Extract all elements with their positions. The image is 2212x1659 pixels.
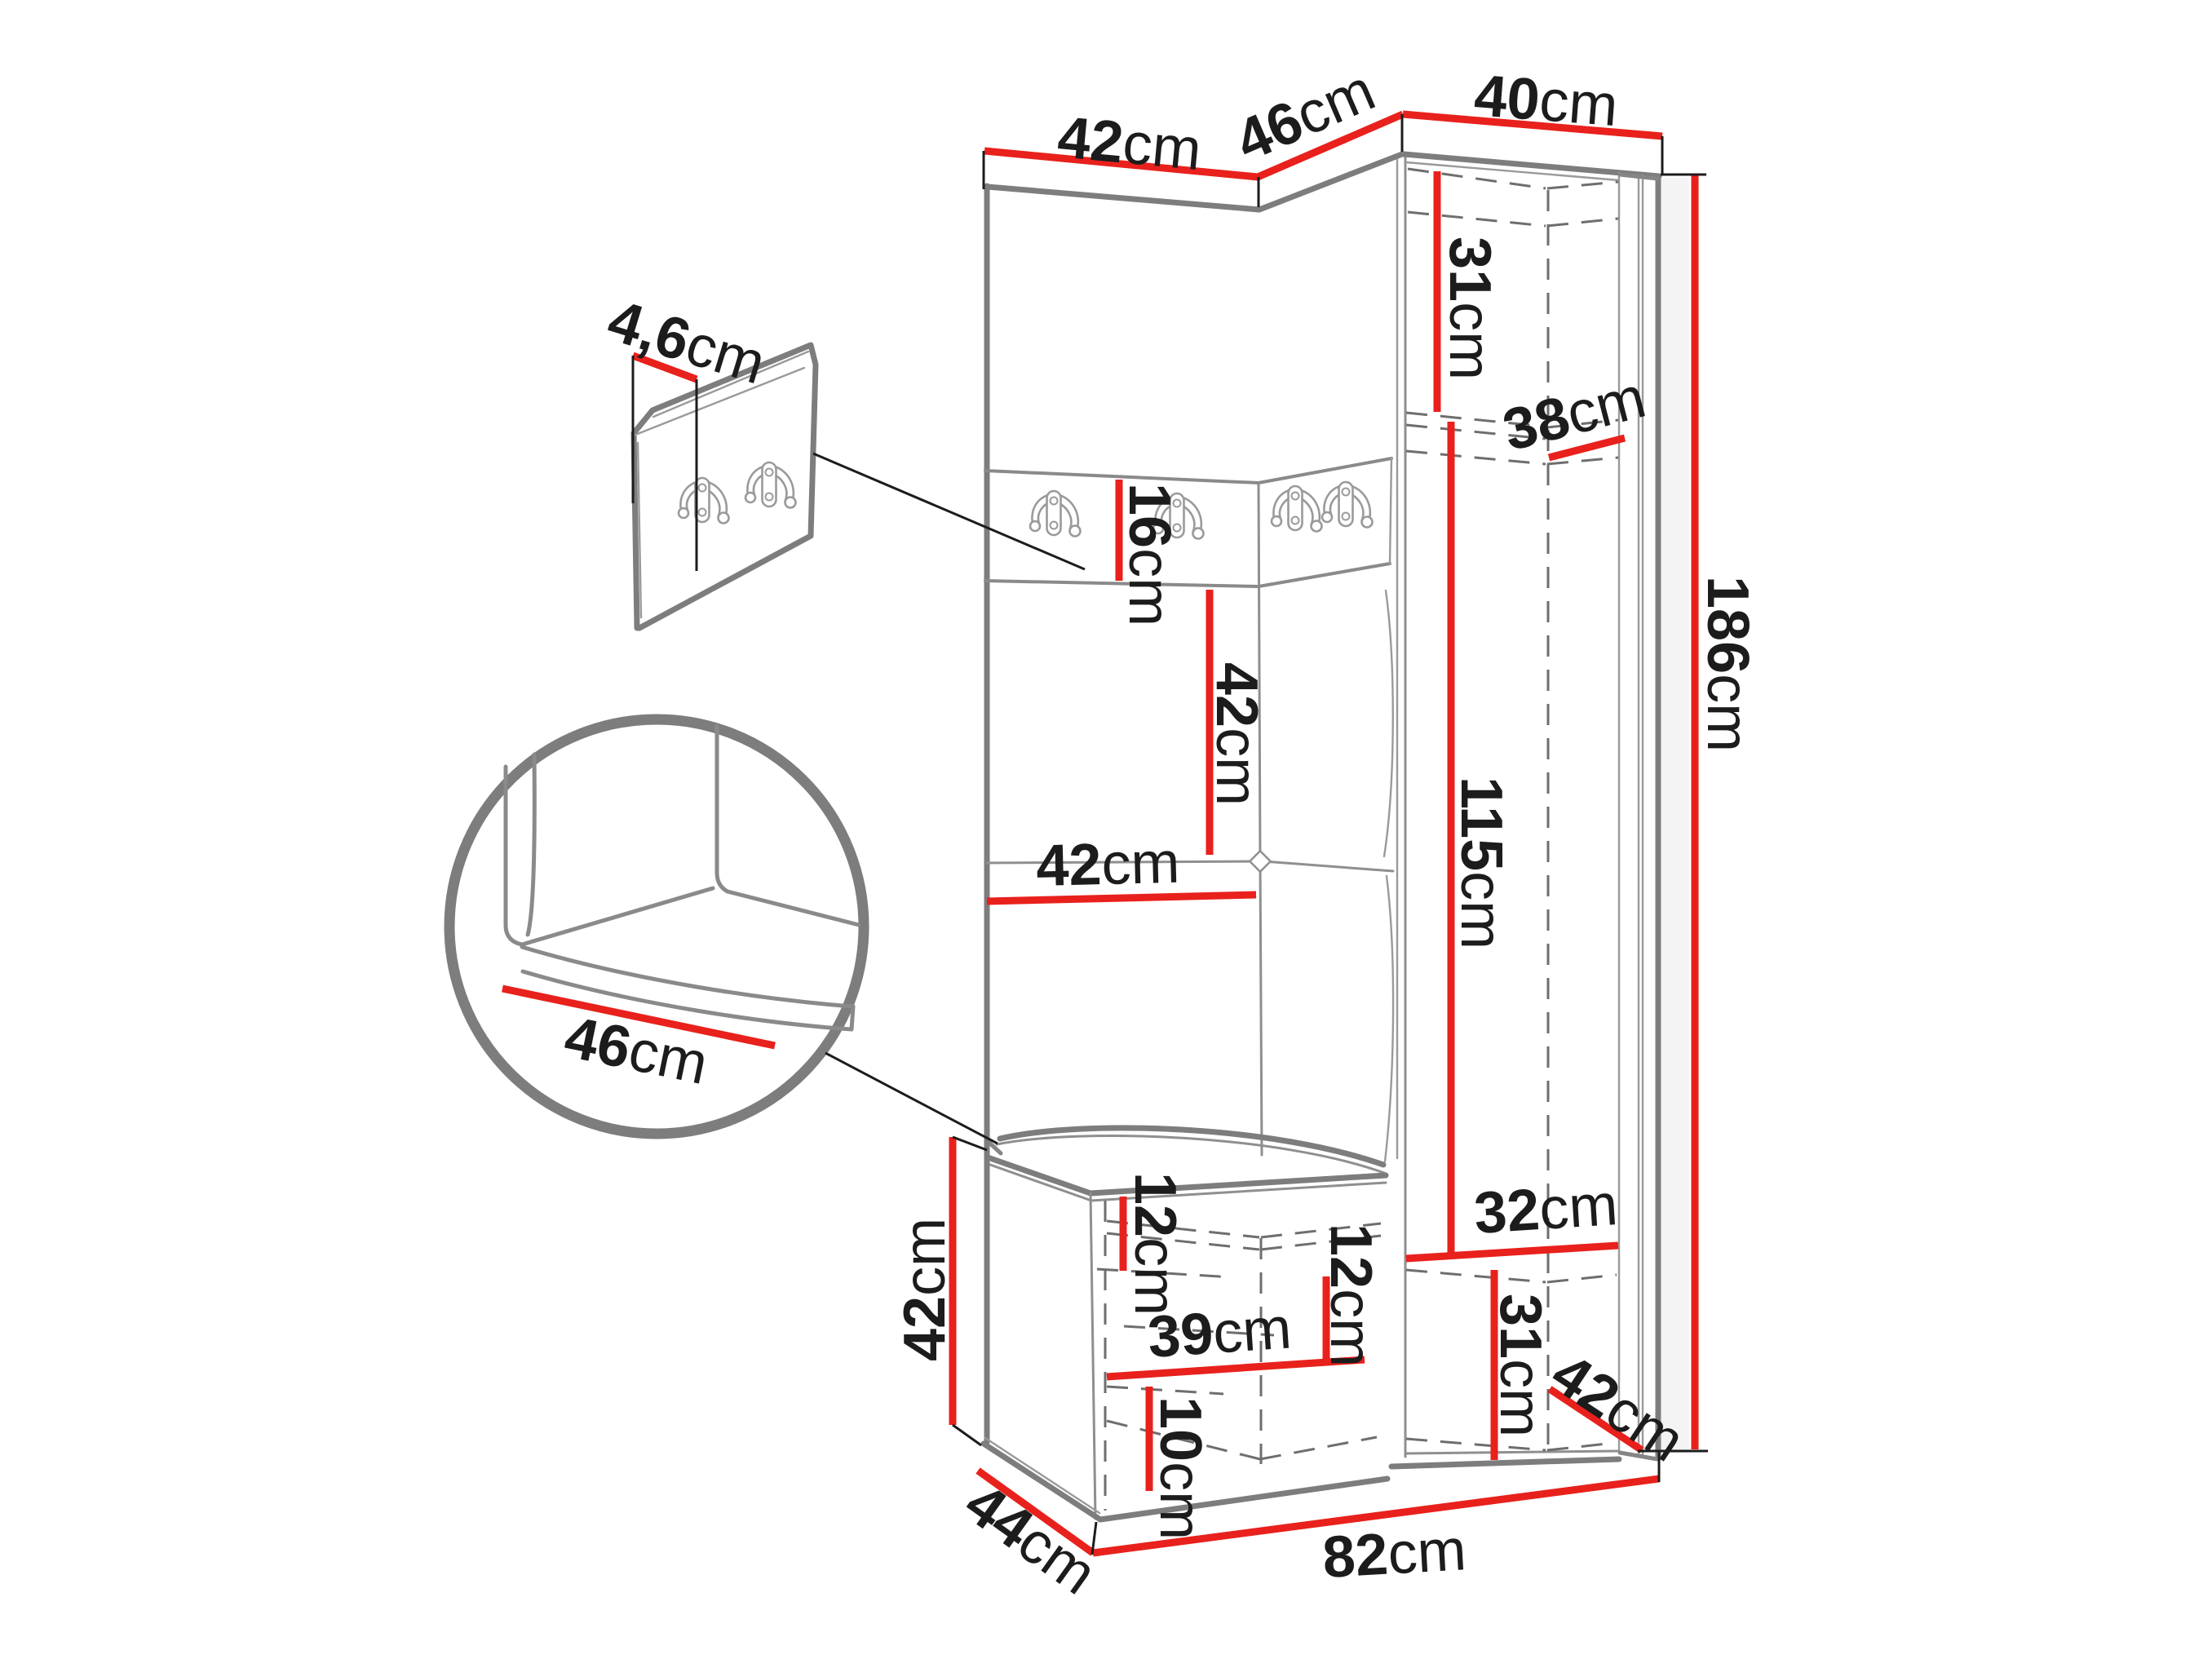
svg-text:31cm: 31cm (1437, 237, 1502, 380)
svg-text:115cm: 115cm (1449, 776, 1514, 949)
svg-text:42cm: 42cm (1035, 830, 1180, 899)
svg-text:40cm: 40cm (1472, 63, 1621, 139)
svg-text:42cm: 42cm (892, 1218, 958, 1361)
svg-text:31cm: 31cm (1488, 1294, 1553, 1437)
svg-text:12cm: 12cm (1318, 1223, 1383, 1367)
svg-text:186cm: 186cm (1695, 576, 1760, 752)
svg-text:10cm: 10cm (1148, 1396, 1213, 1540)
svg-text:16cm: 16cm (1117, 483, 1182, 626)
svg-text:82cm: 82cm (1321, 1517, 1467, 1590)
svg-text:42cm: 42cm (1204, 662, 1269, 806)
svg-text:39cm: 39cm (1146, 1295, 1294, 1369)
svg-text:42cm: 42cm (1055, 104, 1205, 183)
svg-text:32cm: 32cm (1472, 1172, 1620, 1246)
svg-text:12cm: 12cm (1122, 1172, 1188, 1316)
